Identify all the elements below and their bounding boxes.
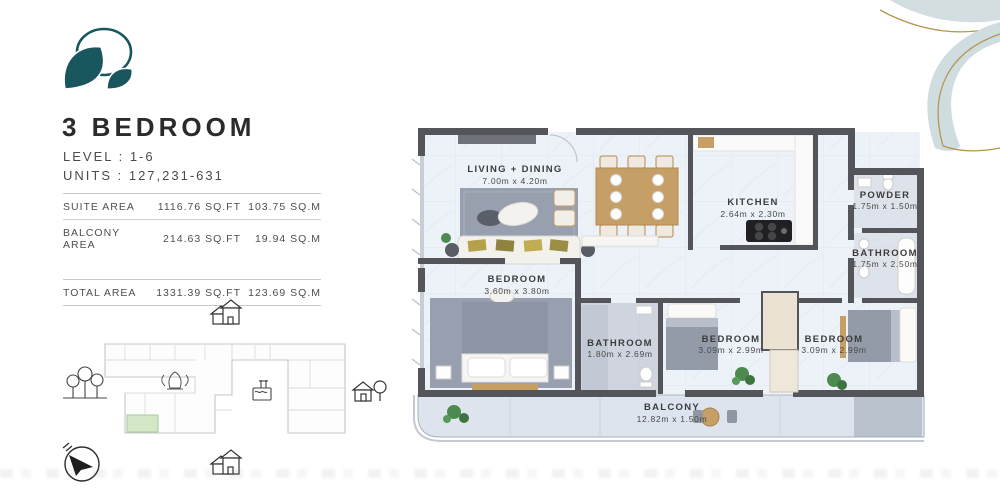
dining-table	[596, 168, 678, 225]
room-dims-kitchen: 2.64m x 2.30m	[720, 209, 785, 219]
room-label-balcony: BALCONY	[644, 402, 700, 413]
suite-area-label: SUITE AREA	[63, 201, 145, 213]
kitchen-counter-right	[795, 135, 813, 245]
page-title: 3 BEDROOM	[62, 112, 255, 143]
room-label-powder: POWDER	[860, 190, 911, 201]
highlighted-unit	[127, 415, 158, 432]
unit-numbers: UNITS : 127,231-631	[63, 168, 224, 183]
decor-band	[890, 0, 1000, 22]
balcony-chair	[727, 410, 737, 423]
room-label-kitchen: KITCHEN	[727, 197, 778, 208]
room-dims-bedroom-mid: 3.09m x 2.99m	[698, 345, 763, 355]
unit-level: LEVEL : 1-6	[63, 149, 155, 164]
chair	[628, 156, 645, 168]
logo-leaf-small-icon	[107, 68, 132, 89]
balcony-area-sqft: 214.63 SQ.FT	[145, 233, 241, 245]
room-dims-balcony: 12.82m x 1.50m	[637, 414, 708, 424]
pillow-strip	[900, 308, 916, 362]
pillow-strip	[668, 304, 716, 318]
brochure-page: 3 BEDROOM LEVEL : 1-6 UNITS : 127,231-63…	[0, 0, 1000, 500]
balcony-terrace-slab	[854, 395, 922, 437]
room-dims-powder: 1.75m x 1.50m	[852, 201, 917, 211]
balcony-area-label: BALCONY AREA	[63, 227, 145, 251]
room-dims-bedroom-right: 3.09m x 2.99m	[801, 345, 866, 355]
chair	[600, 225, 617, 237]
kitchen-appliance	[698, 137, 714, 148]
pillow	[510, 358, 547, 377]
hall-console	[582, 236, 658, 246]
wardrobe-column	[762, 292, 798, 350]
chair	[628, 225, 645, 237]
suite-area-sqft: 1116.76 SQ.FT	[145, 201, 241, 213]
room-dims-bedroom-left: 3.60m x 3.80m	[484, 286, 549, 296]
armchair-1	[554, 190, 575, 206]
house-tree-east-icon	[353, 381, 386, 401]
decor-leaf	[927, 22, 1000, 151]
site-key-plan	[55, 288, 400, 498]
chair	[656, 225, 673, 237]
logo-leaf-large-icon	[64, 47, 103, 89]
bed-blanket	[462, 302, 548, 354]
room-label-living-dining: LIVING + DINING	[467, 164, 562, 175]
nightstand	[554, 366, 569, 379]
brand-logo	[58, 16, 138, 98]
living-plant	[441, 233, 451, 243]
room-dims-living-dining: 7.00m x 4.20m	[482, 176, 547, 186]
dining-set	[596, 156, 678, 237]
room-label-bathroom-right: BATHROOM	[852, 248, 918, 259]
suite-area-sqm: 103.75 SQ.M	[241, 201, 321, 213]
floor-plan: LIVING + DINING 7.00m x 4.20m KITCHEN 2.…	[410, 110, 932, 444]
wardrobe-lower	[770, 350, 798, 392]
toilet	[883, 178, 893, 190]
pillow	[468, 358, 505, 377]
room-label-bedroom-mid: BEDROOM	[702, 334, 761, 345]
tv-console	[458, 135, 536, 144]
nightstand	[436, 366, 451, 379]
footer-watermark	[0, 469, 1000, 478]
sink	[636, 306, 652, 314]
table-row-balcony-area: BALCONY AREA 214.63 SQ.FT 19.94 SQ.M	[63, 220, 321, 257]
armchair-2	[554, 210, 575, 226]
chair	[656, 156, 673, 168]
trees-west-icon	[63, 367, 107, 398]
pool-icon	[253, 380, 271, 400]
neighbor-houses-north-icon	[211, 300, 241, 324]
balcony-area-sqm: 19.94 SQ.M	[241, 233, 321, 245]
room-label-bedroom-left: BEDROOM	[488, 274, 547, 285]
sink	[858, 178, 871, 187]
table-row-suite-area: SUITE AREA 1116.76 SQ.FT 103.75 SQ.M	[63, 194, 321, 220]
room-dims-bathroom-right: 1.75m x 2.50m	[852, 259, 917, 269]
room-dims-bathroom-mid: 1.80m x 2.69m	[587, 349, 652, 359]
toilet	[640, 367, 652, 381]
side-table-left	[445, 243, 459, 257]
chair	[600, 156, 617, 168]
room-label-bathroom-mid: BATHROOM	[587, 338, 653, 349]
room-label-bedroom-right: BEDROOM	[805, 334, 864, 345]
bedroom-left-furniture	[430, 289, 572, 391]
bed-bench	[472, 384, 538, 391]
